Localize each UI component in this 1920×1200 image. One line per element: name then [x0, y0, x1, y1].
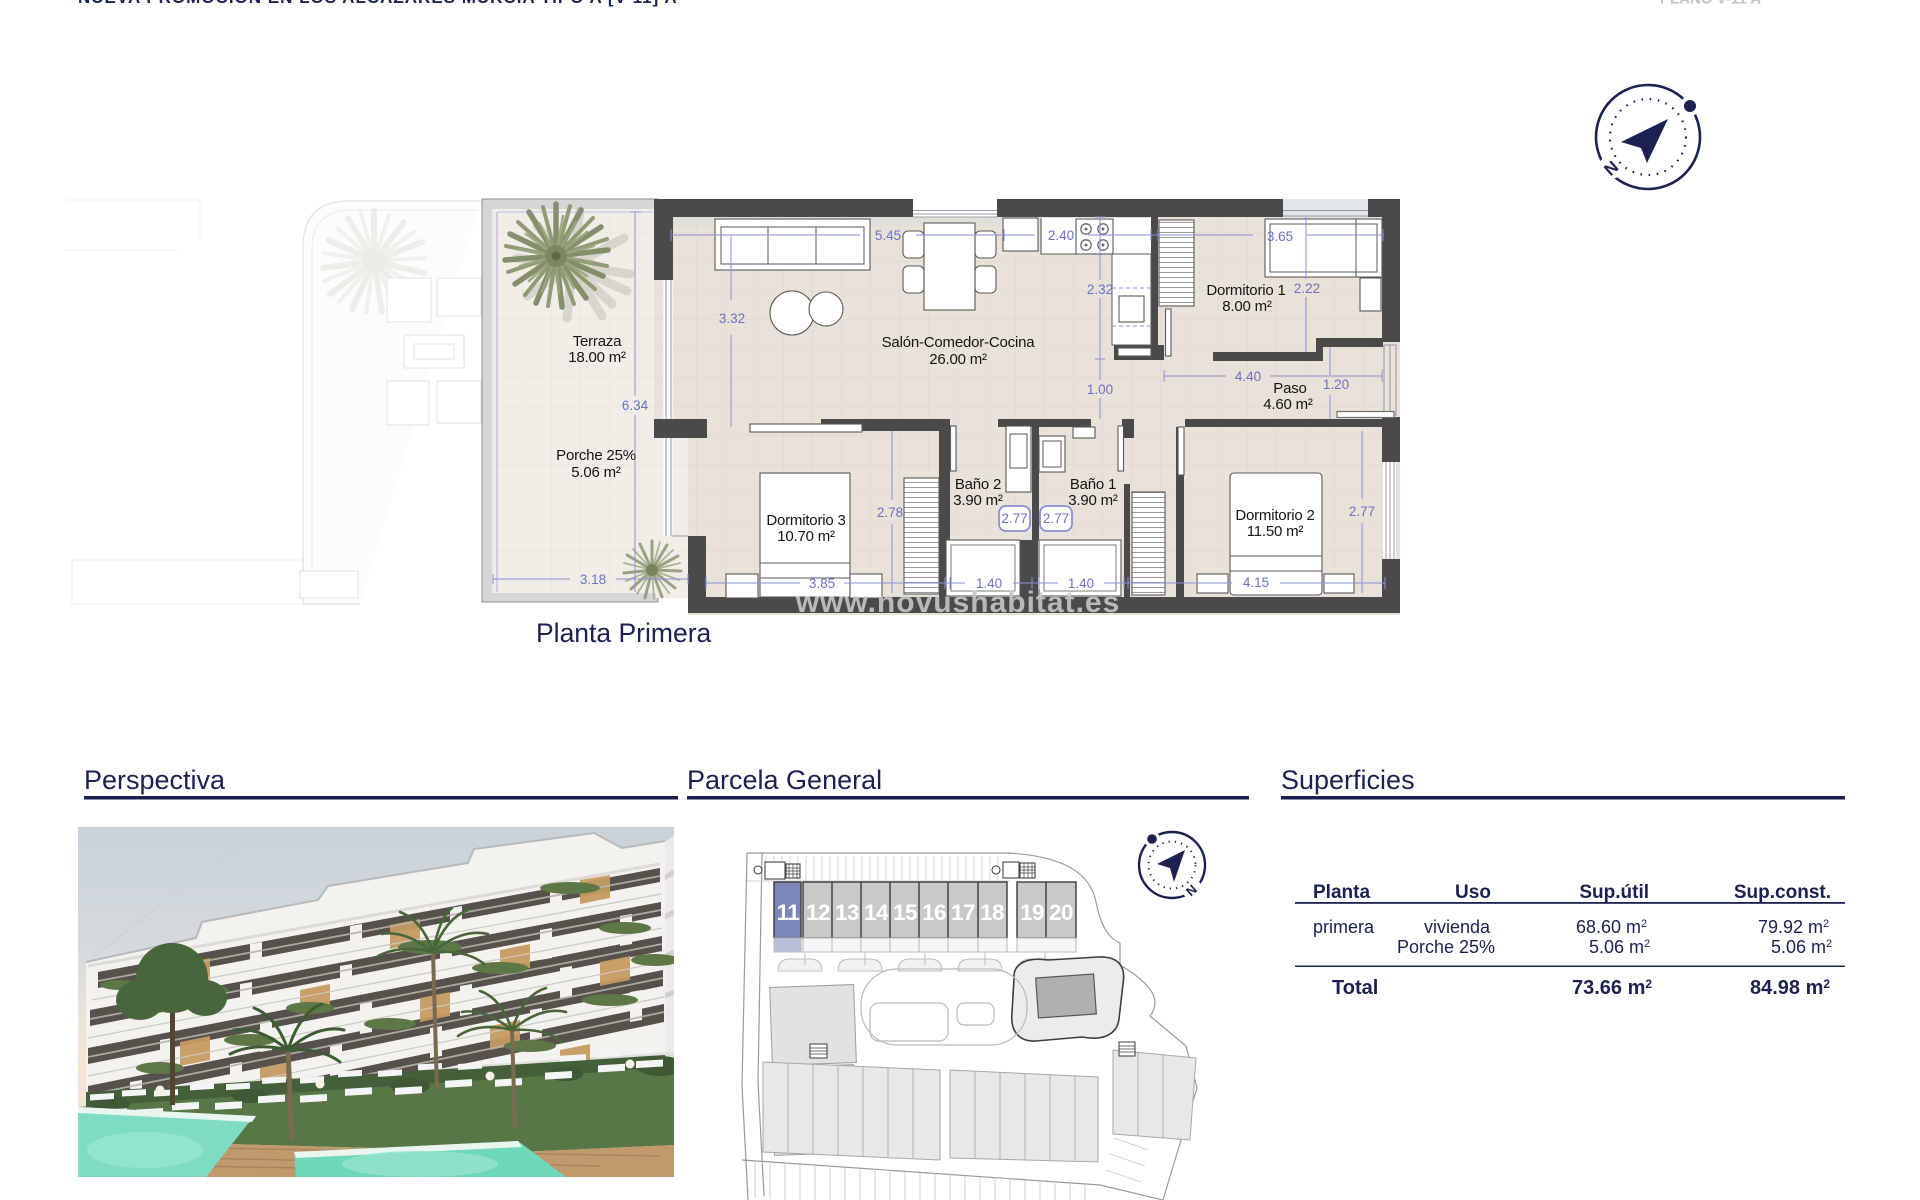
svg-text:3.32: 3.32	[719, 311, 745, 326]
svg-text:Terraza: Terraza	[573, 333, 622, 350]
svg-text:Parcela General: Parcela General	[687, 765, 882, 795]
svg-text:13: 13	[835, 900, 859, 925]
svg-text:15: 15	[893, 900, 917, 925]
svg-text:NUEVA PROMOCION EN LOS ALCAZAR: NUEVA PROMOCION EN LOS ALCAZARES MURCIA …	[78, 0, 678, 7]
svg-text:Total: Total	[1332, 977, 1378, 999]
svg-text:Planta: Planta	[1313, 882, 1370, 903]
svg-text:3.18: 3.18	[580, 572, 606, 587]
svg-text:3.65: 3.65	[1267, 229, 1293, 244]
svg-text:Baño 1: Baño 1	[1070, 476, 1116, 493]
svg-text:6.34: 6.34	[622, 398, 649, 413]
svg-text:20: 20	[1049, 900, 1073, 925]
svg-text:68.60 m2: 68.60 m2	[1576, 917, 1647, 937]
svg-text:www.novushabitat.es: www.novushabitat.es	[795, 586, 1121, 619]
svg-text:4.15: 4.15	[1243, 575, 1269, 590]
svg-text:Sup.útil: Sup.útil	[1579, 882, 1649, 903]
svg-text:12: 12	[806, 900, 830, 925]
svg-text:5.45: 5.45	[875, 228, 901, 243]
svg-text:Dormitorio 2: Dormitorio 2	[1235, 507, 1314, 524]
svg-text:primera: primera	[1313, 917, 1375, 937]
svg-text:3.90 m²: 3.90 m²	[953, 492, 1003, 509]
svg-text:17: 17	[951, 900, 975, 925]
svg-text:4.60 m²: 4.60 m²	[1263, 396, 1313, 413]
svg-text:16: 16	[922, 900, 946, 925]
svg-text:3.90 m²: 3.90 m²	[1068, 492, 1118, 509]
svg-text:26.00 m²: 26.00 m²	[929, 351, 987, 368]
svg-text:8.00 m²: 8.00 m²	[1222, 298, 1272, 315]
svg-text:1.00: 1.00	[1087, 382, 1113, 397]
svg-text:Porche 25%: Porche 25%	[556, 447, 636, 464]
svg-text:11.50 m²: 11.50 m²	[1247, 523, 1304, 540]
svg-text:18: 18	[980, 900, 1004, 925]
svg-text:11: 11	[777, 900, 800, 925]
svg-text:2.78: 2.78	[877, 505, 903, 520]
svg-text:Salón-Comedor-Cocina: Salón-Comedor-Cocina	[882, 334, 1036, 351]
svg-text:2.22: 2.22	[1294, 281, 1320, 296]
svg-text:Porche 25%: Porche 25%	[1397, 937, 1495, 957]
svg-text:Dormitorio 3: Dormitorio 3	[766, 512, 845, 529]
svg-text:5.06 m2: 5.06 m2	[1589, 937, 1650, 957]
svg-text:Superficies: Superficies	[1281, 765, 1415, 795]
svg-text:5.06 m²: 5.06 m²	[571, 464, 621, 481]
svg-text:Baño 2: Baño 2	[955, 476, 1001, 493]
svg-text:10.70 m²: 10.70 m²	[777, 528, 835, 545]
svg-text:Perspectiva: Perspectiva	[84, 765, 226, 795]
svg-text:5.06 m2: 5.06 m2	[1771, 937, 1832, 957]
svg-text:2.77: 2.77	[1349, 504, 1375, 519]
svg-text:vivienda: vivienda	[1424, 917, 1491, 937]
svg-text:Sup.const.: Sup.const.	[1734, 882, 1831, 903]
svg-text:4.40: 4.40	[1235, 369, 1261, 384]
svg-text:Dormitorio 1: Dormitorio 1	[1206, 282, 1285, 299]
svg-text:19: 19	[1020, 900, 1044, 925]
svg-text:1.20: 1.20	[1323, 377, 1349, 392]
svg-text:Planta Primera: Planta Primera	[536, 618, 712, 648]
svg-text:73.66 m2: 73.66 m2	[1572, 977, 1652, 999]
svg-text:Uso: Uso	[1455, 882, 1491, 903]
svg-text:84.98 m2: 84.98 m2	[1750, 977, 1830, 999]
svg-text:2.40: 2.40	[1048, 228, 1074, 243]
svg-text:18.00 m²: 18.00 m²	[568, 349, 626, 366]
svg-text:14: 14	[864, 900, 889, 925]
svg-text:PLANO V-11 A: PLANO V-11 A	[1660, 0, 1761, 8]
svg-text:Paso: Paso	[1273, 380, 1306, 397]
svg-text:2.77: 2.77	[1001, 511, 1027, 526]
svg-text:79.92 m2: 79.92 m2	[1758, 917, 1829, 937]
svg-text:2.32: 2.32	[1087, 282, 1113, 297]
svg-text:2.77: 2.77	[1043, 511, 1069, 526]
